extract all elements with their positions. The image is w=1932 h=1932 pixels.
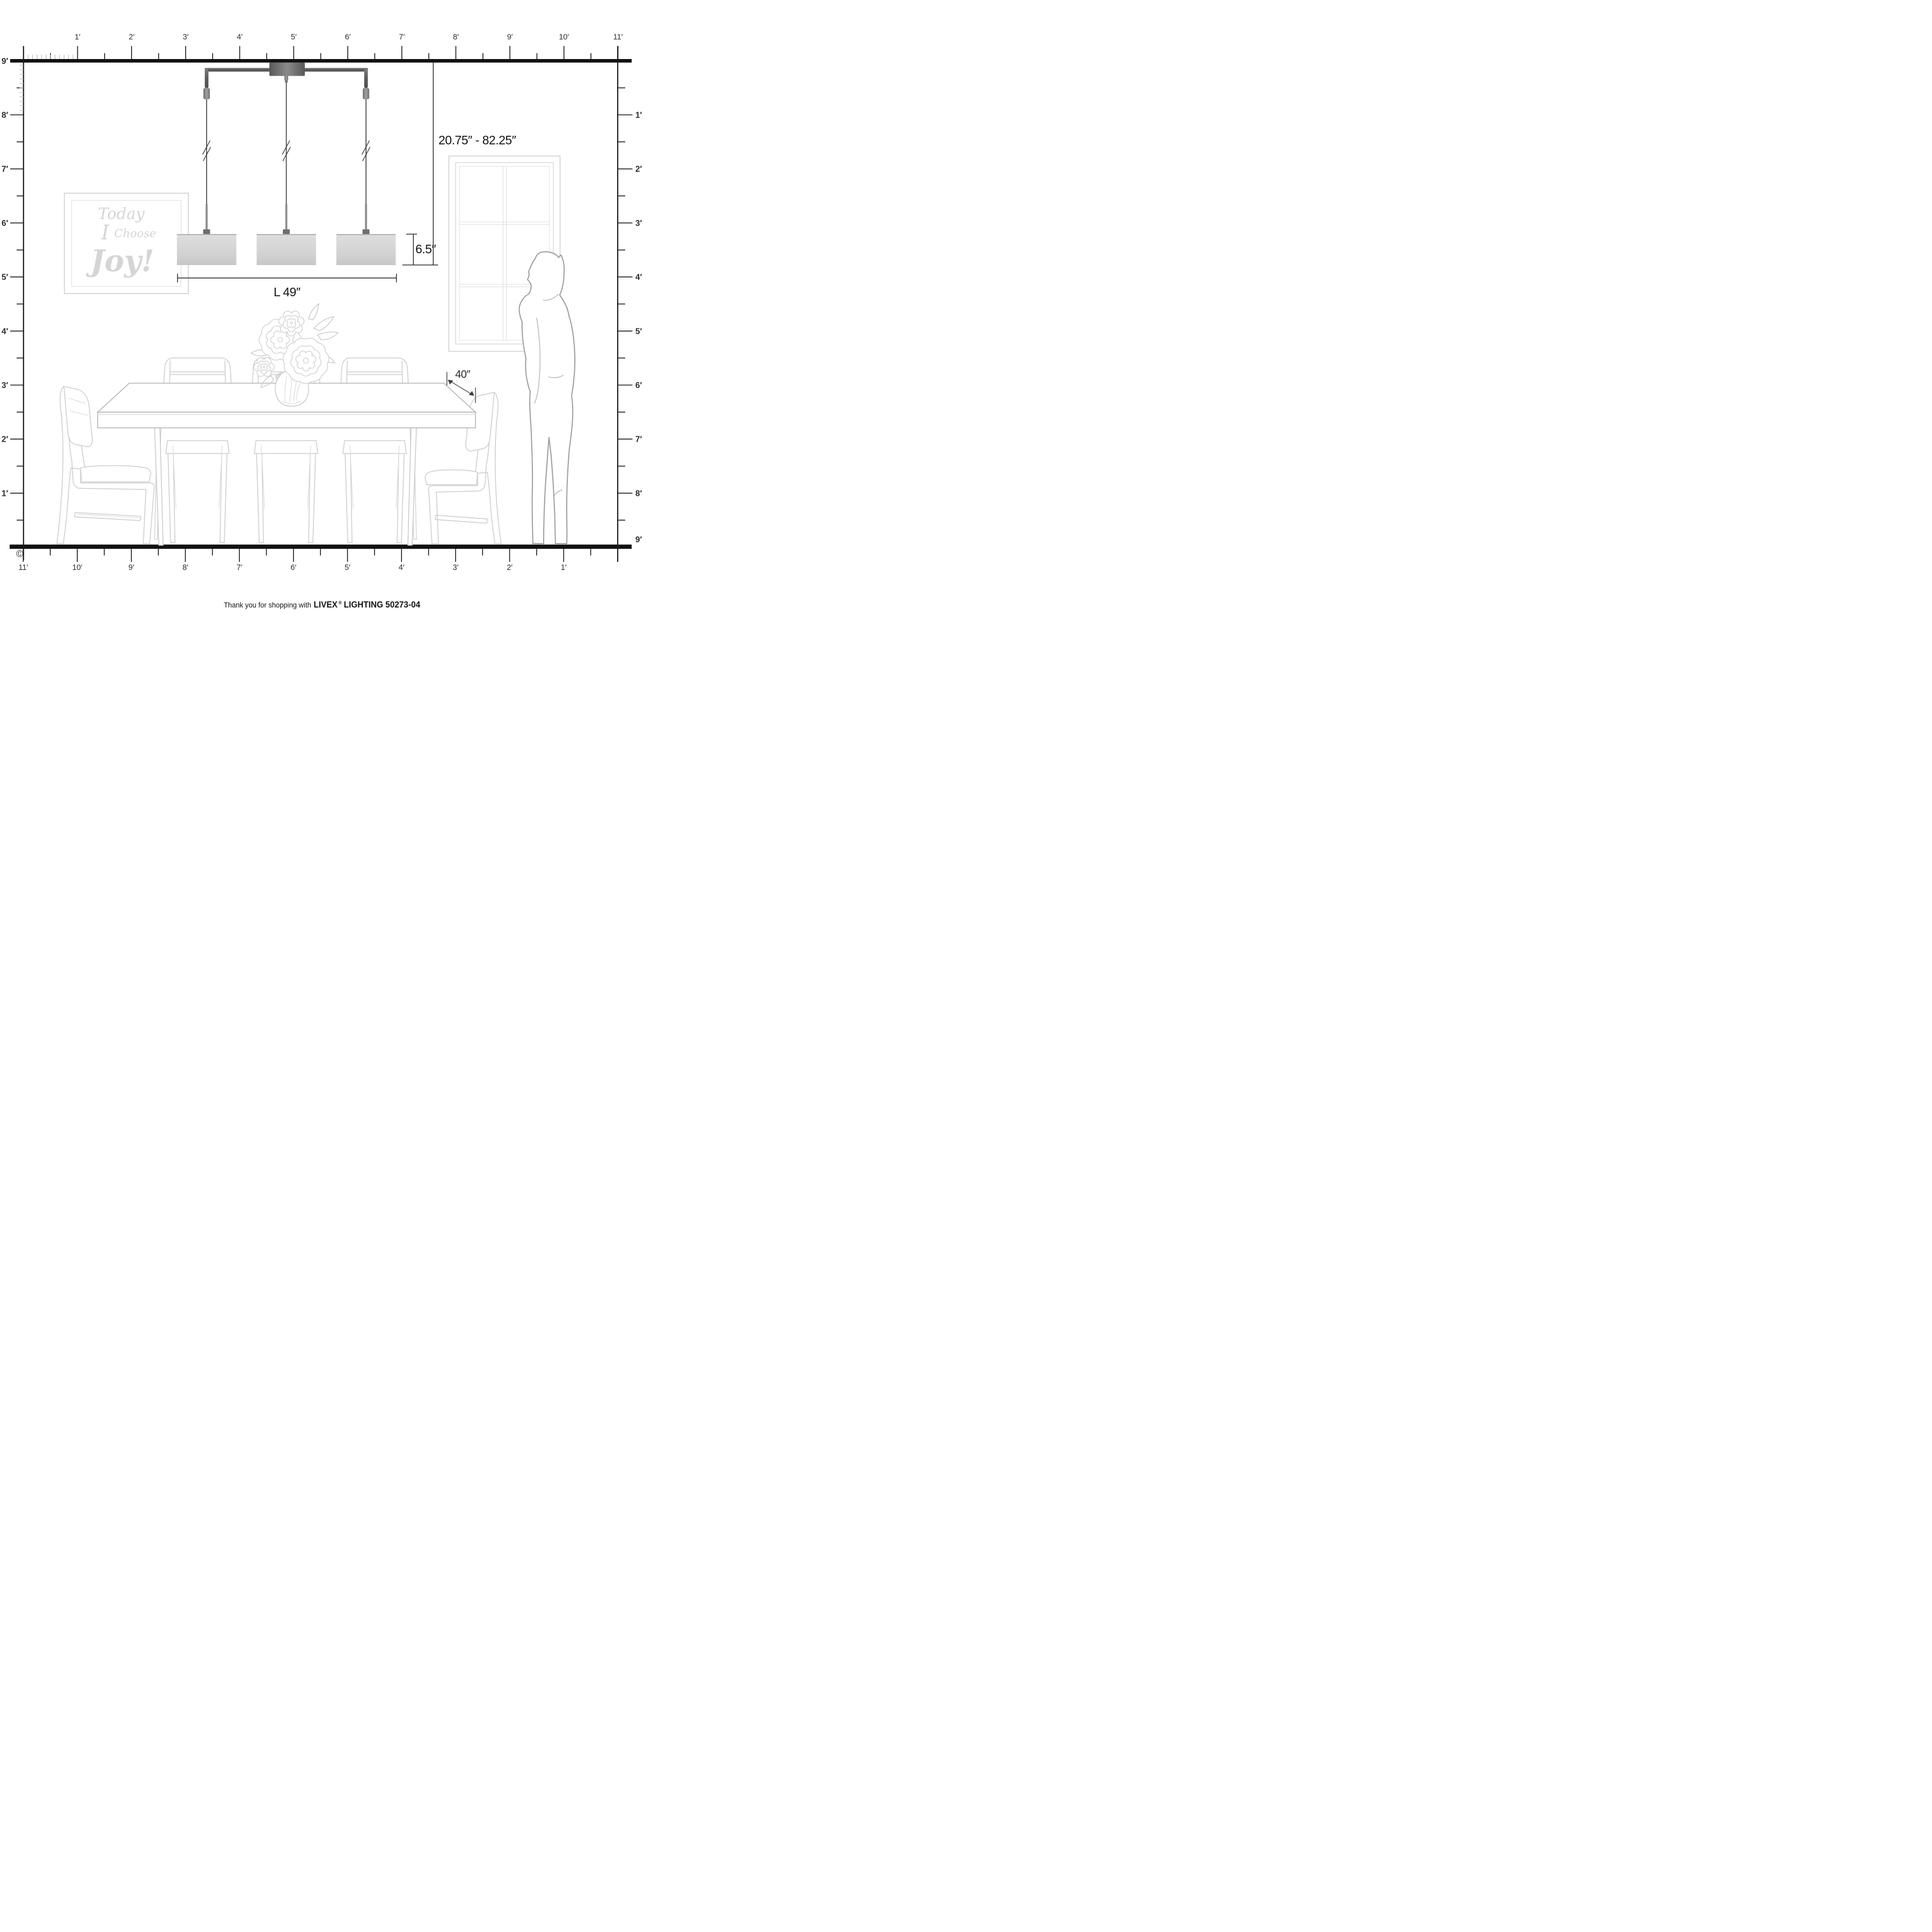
dining-table <box>98 383 475 545</box>
bottom-ruler-label: 6′ <box>290 563 296 572</box>
bottom-ruler-label: 5′ <box>345 563 350 572</box>
top-ruler-label: 5′ <box>291 33 297 42</box>
shade-height-label: 6.5″ <box>415 242 436 256</box>
right-ruler-label: 3′ <box>635 219 642 228</box>
top-ruler-label: 6′ <box>345 33 351 42</box>
fixture-bar-bend <box>205 69 209 88</box>
left-ruler-label: 4′ <box>2 327 9 336</box>
peony-petal-ring <box>287 319 296 327</box>
footer-brand: LIVEX <box>313 600 337 610</box>
pendant-cords <box>207 83 366 204</box>
top-ruler-label: 9′ <box>507 33 513 42</box>
wall-art-line1: Today <box>98 204 145 223</box>
footer-model: LIGHTING 50273-04 <box>344 600 420 610</box>
footer-caption: Thank you for shopping withLIVEX®LIGHTIN… <box>23 600 621 610</box>
bottom-ruler-label: 10′ <box>72 563 83 572</box>
peony-petal-ring <box>261 364 267 370</box>
right-ruler-label: 9′ <box>635 536 642 545</box>
drum-shades <box>177 234 396 265</box>
chair-back <box>341 358 408 384</box>
cord-ferrule <box>203 88 210 99</box>
top-ruler-label: 2′ <box>129 33 135 42</box>
peony-flower <box>254 358 274 377</box>
left-chair-seat <box>80 466 151 482</box>
left-ruler-label: 3′ <box>2 381 9 390</box>
length-label: L 49″ <box>274 285 301 299</box>
fixture-bar-bend <box>364 69 368 88</box>
drum-shade <box>257 234 316 265</box>
top-ruler-label: 7′ <box>399 33 405 42</box>
registered-trademark-icon: ® <box>339 600 342 605</box>
peony-petal-ring <box>270 331 289 348</box>
top-ruler: 1′2′3′4′5′6′7′8′9′10′11′ <box>28 33 623 60</box>
drum-shade <box>336 234 396 265</box>
right-ruler-label: 7′ <box>635 435 642 444</box>
right-ruler-label: 2′ <box>635 165 642 174</box>
top-ruler-label: 8′ <box>453 33 459 42</box>
bottom-ruler-label: 11′ <box>18 563 28 572</box>
left-ruler-label: 9′ <box>2 57 9 66</box>
right-ruler-label: 4′ <box>635 273 642 282</box>
left-ruler-label: 5′ <box>2 273 9 282</box>
copyright-mark: © <box>16 548 23 559</box>
right-ruler-label: 8′ <box>635 489 642 498</box>
top-ruler-label: 10′ <box>559 33 569 42</box>
room-dimension-diagram: 1′2′3′4′5′6′7′8′9′10′11′ 9′8′7′6′5′4′3′2… <box>0 0 644 644</box>
bottom-ruler-label: 8′ <box>182 563 188 572</box>
left-ruler-label: 6′ <box>2 219 9 228</box>
bottom-ruler: 1′2′3′4′5′6′7′8′9′10′11′ <box>18 549 590 572</box>
hanging-height-label: 20.75″ - 82.25″ <box>438 133 516 147</box>
shade-stems <box>206 204 367 229</box>
left-ruler-label: 2′ <box>2 435 9 444</box>
canopy-nipple <box>284 76 288 80</box>
left-ruler: 9′8′7′6′5′4′3′2′1′ <box>2 57 24 520</box>
pendant-fixture <box>177 63 396 265</box>
woman-silhouette <box>519 252 575 544</box>
floor-line <box>10 545 632 549</box>
shade-sockets <box>203 229 370 234</box>
right-ruler-label: 6′ <box>635 381 642 390</box>
table-legs <box>155 428 416 545</box>
ceiling-line <box>10 59 632 63</box>
bottom-ruler-label: 7′ <box>237 563 243 572</box>
peony-flower <box>279 311 304 336</box>
ceiling-canopy <box>269 63 305 76</box>
depth-arrowhead <box>469 391 474 396</box>
depth-arrowhead <box>448 380 453 385</box>
right-ruler-label: 1′ <box>635 111 642 120</box>
top-ruler-label: 1′ <box>75 33 80 42</box>
left-ruler-label: 1′ <box>2 489 9 498</box>
drum-shade <box>177 234 237 265</box>
wall-art-line2-i: I <box>101 221 110 244</box>
left-ruler-label: 7′ <box>2 165 9 174</box>
chair-back <box>164 358 231 384</box>
woman-outline <box>519 252 575 544</box>
bottom-ruler-label: 9′ <box>128 563 134 572</box>
depth-label: 40″ <box>455 369 470 380</box>
bottom-ruler-label: 4′ <box>399 563 405 572</box>
wall-art-line2-choose: Choose <box>114 227 156 240</box>
bottom-ruler-label: 2′ <box>507 563 513 572</box>
cord-ferrule <box>363 88 369 99</box>
top-ruler-label: 3′ <box>183 33 189 42</box>
footer-prefix: Thank you for shopping with <box>224 601 311 609</box>
bottom-ruler-label: 1′ <box>561 563 567 572</box>
right-ruler-label: 5′ <box>635 327 642 336</box>
wall-art: Today I Choose Joy! <box>64 193 188 294</box>
left-ruler-label: 8′ <box>2 111 9 120</box>
page: { "rulers": { "top": {"labels": ["1\u203… <box>0 0 644 644</box>
top-ruler-label: 11′ <box>613 33 623 42</box>
right-ruler: 1′2′3′4′5′6′7′8′9′ <box>618 88 642 545</box>
canopy-ring <box>285 80 288 83</box>
wall-art-line3: Joy! <box>86 243 155 278</box>
top-ruler-label: 4′ <box>237 33 243 42</box>
bottom-ruler-label: 3′ <box>453 563 459 572</box>
chair-underparts <box>166 441 406 543</box>
